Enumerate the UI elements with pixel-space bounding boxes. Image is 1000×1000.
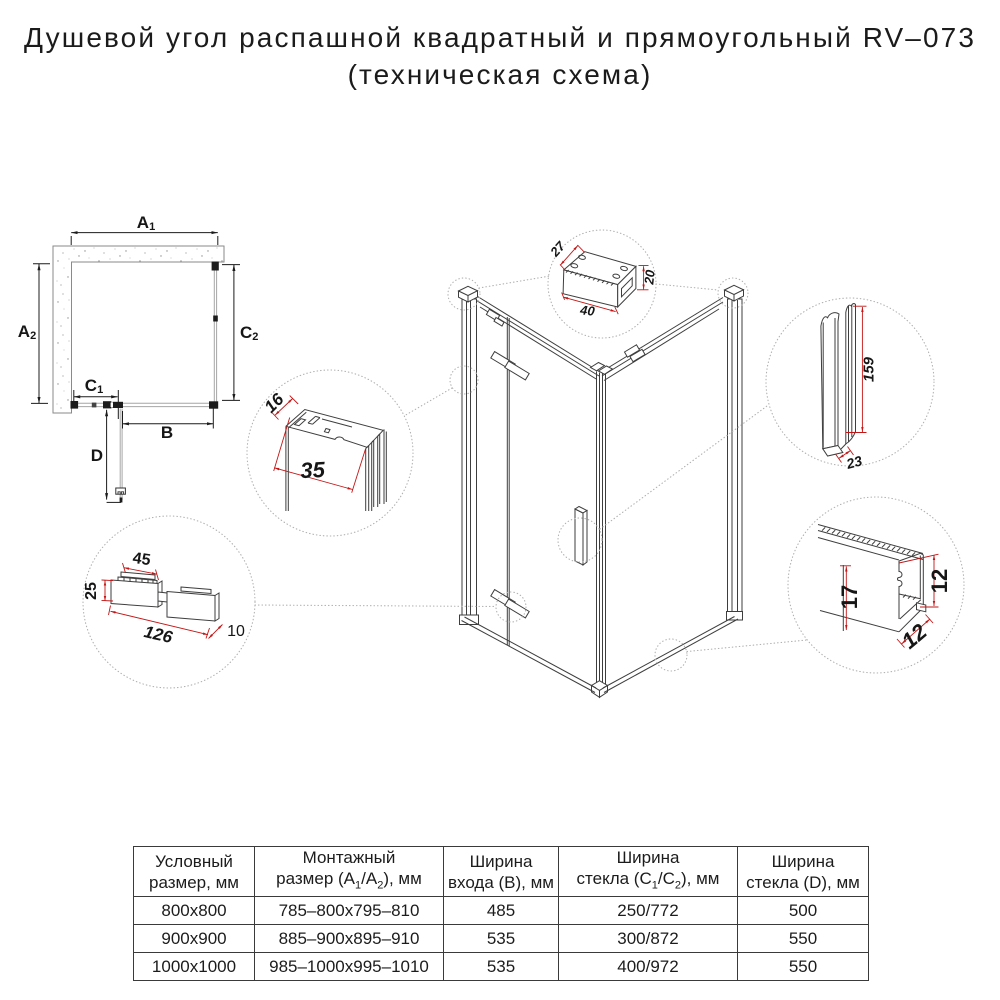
svg-text:159: 159 — [861, 356, 878, 382]
svg-text:20: 20 — [641, 268, 658, 286]
svg-text:B: B — [161, 423, 173, 442]
svg-text:27: 27 — [547, 238, 569, 260]
svg-text:12: 12 — [927, 569, 952, 593]
svg-text:40: 40 — [578, 302, 596, 319]
svg-text:A1: A1 — [137, 213, 155, 233]
svg-text:35: 35 — [300, 457, 327, 483]
svg-text:10: 10 — [227, 623, 245, 640]
svg-text:D: D — [91, 446, 103, 465]
svg-text:45: 45 — [132, 550, 152, 569]
svg-text:16: 16 — [261, 389, 288, 416]
svg-text:25: 25 — [83, 582, 100, 600]
svg-text:C2: C2 — [240, 323, 258, 343]
svg-text:17: 17 — [837, 585, 862, 609]
svg-text:23: 23 — [844, 452, 864, 472]
svg-text:C1: C1 — [85, 376, 103, 396]
svg-text:A2: A2 — [18, 322, 36, 342]
